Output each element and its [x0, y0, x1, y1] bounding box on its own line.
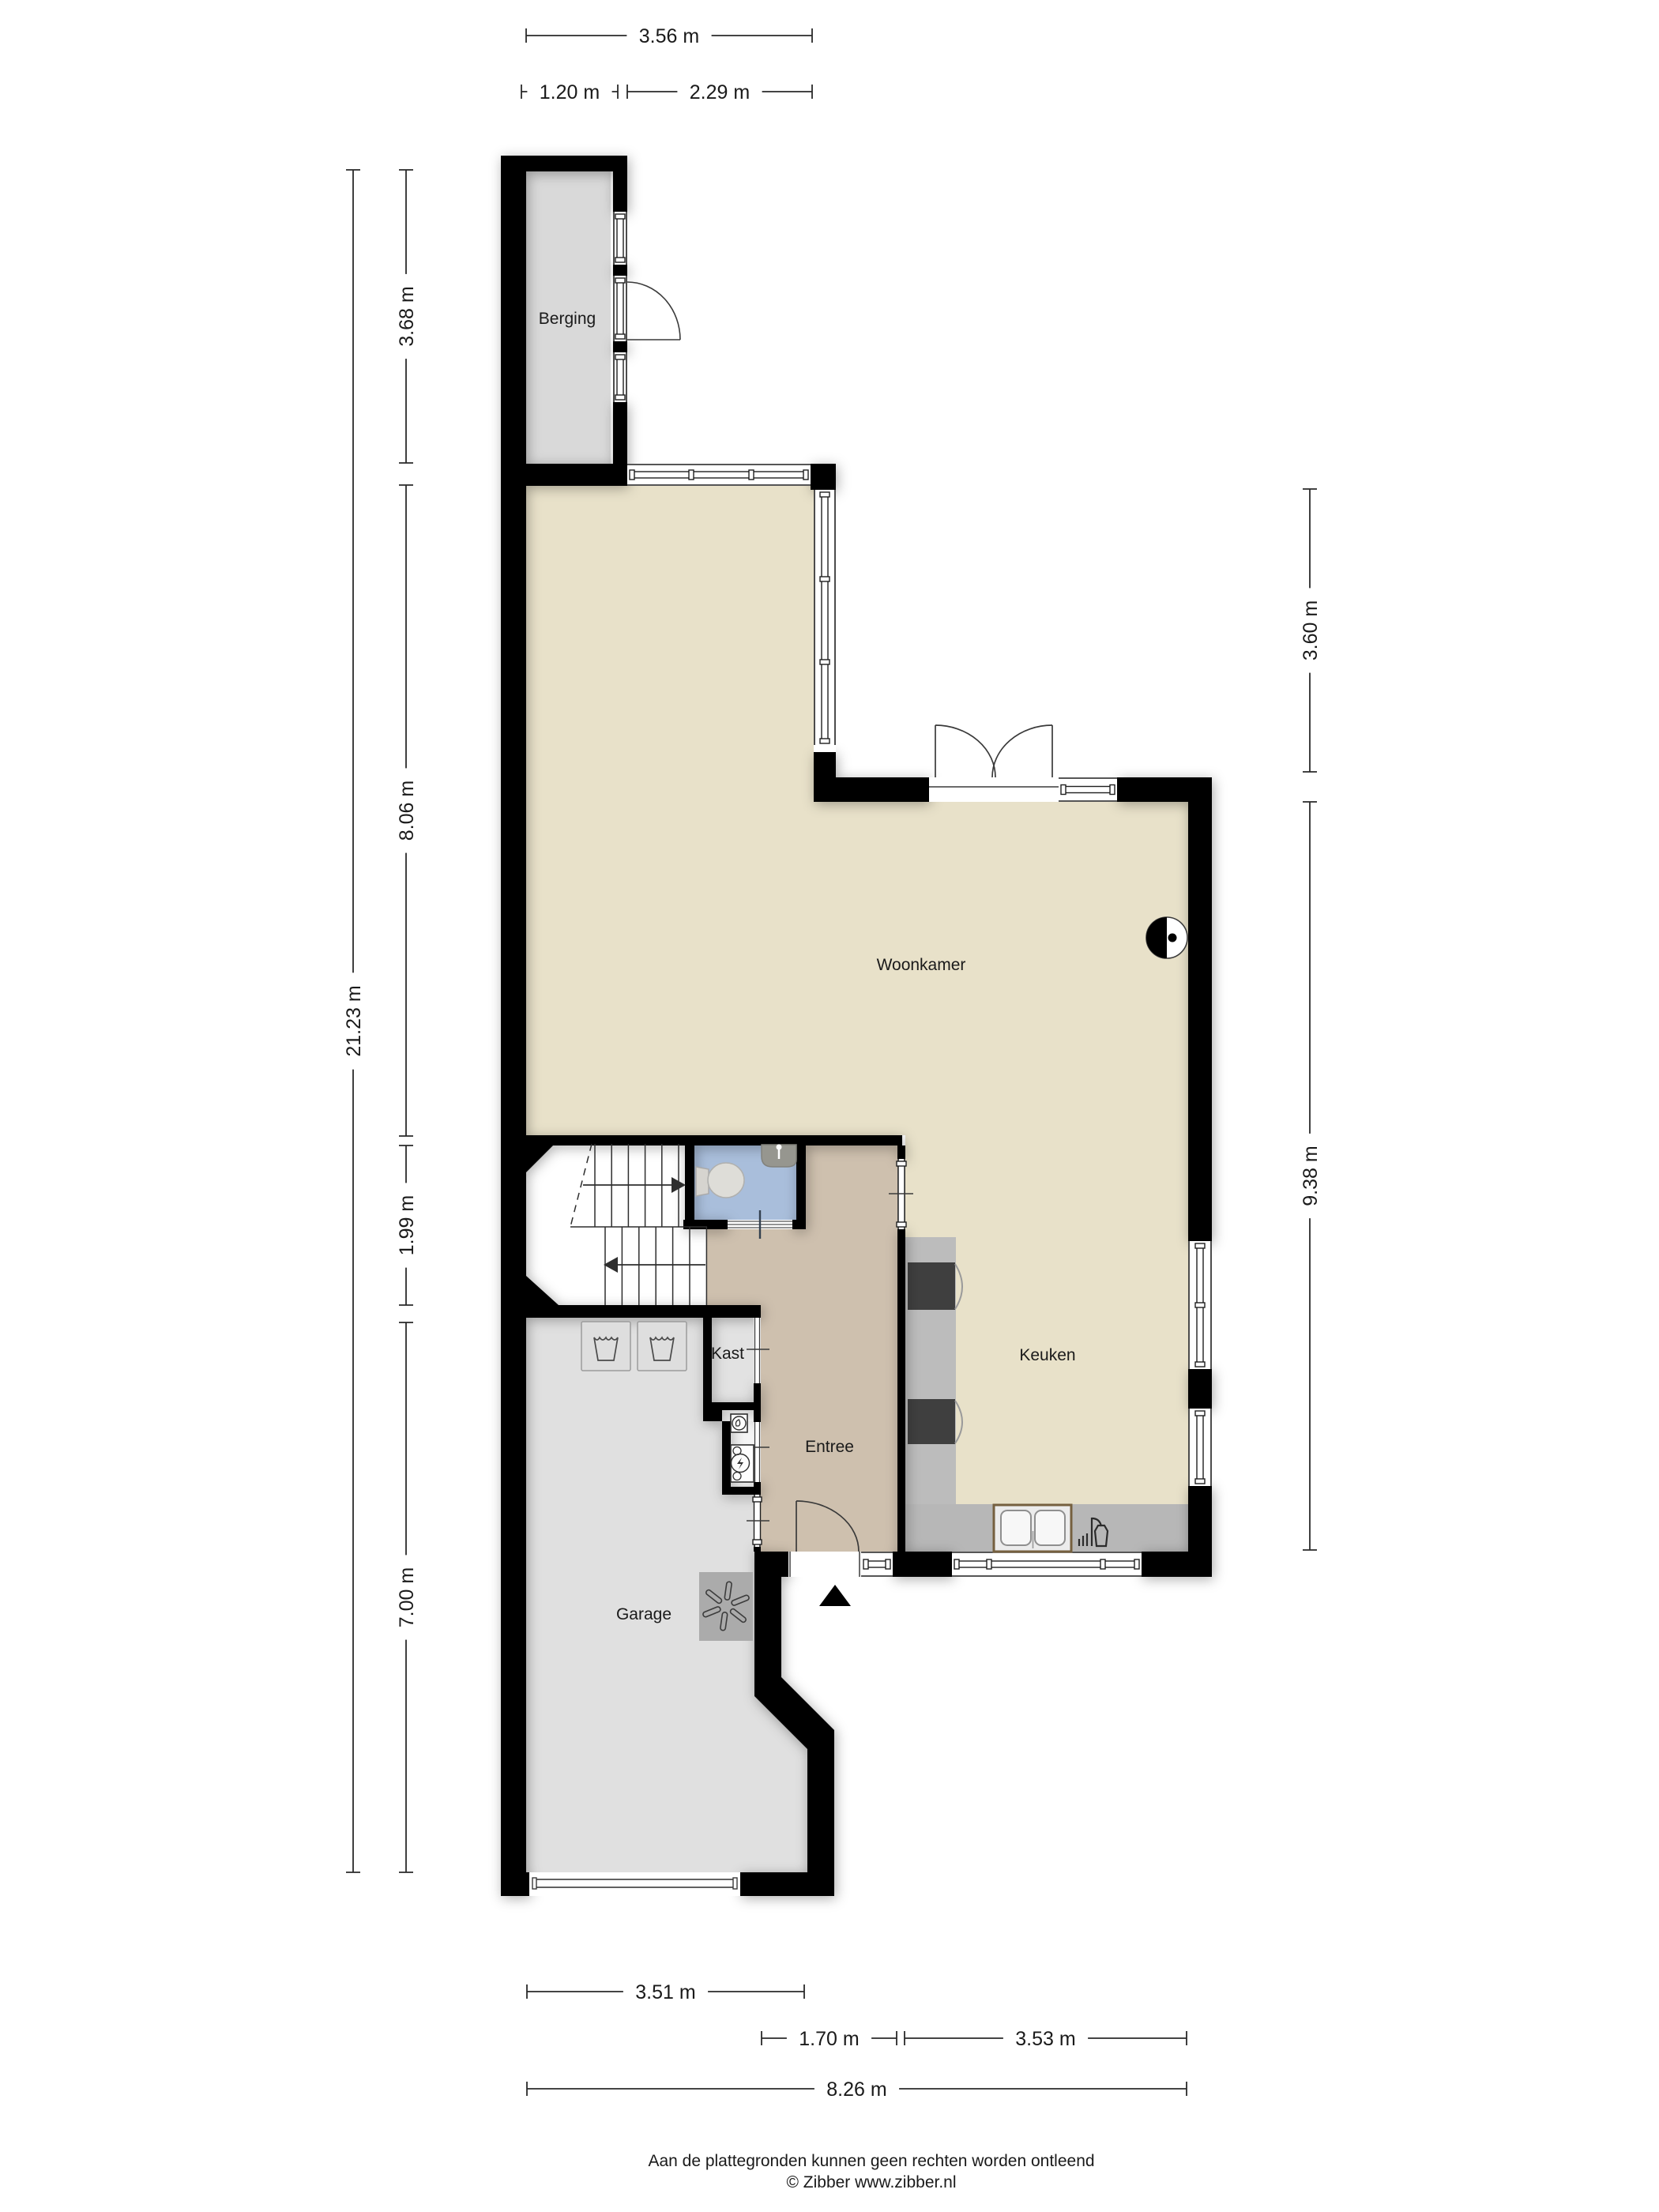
svg-text:8.26 m: 8.26 m: [826, 2078, 886, 2101]
svg-text:Woonkamer: Woonkamer: [877, 956, 966, 974]
svg-text:Aan de plattegronden kunnen ge: Aan de plattegronden kunnen geen rechten…: [648, 2152, 1094, 2170]
svg-text:Berging: Berging: [539, 310, 596, 328]
svg-text:3.56 m: 3.56 m: [639, 25, 699, 47]
svg-text:8.06 m: 8.06 m: [396, 781, 418, 841]
svg-text:3.51 m: 3.51 m: [635, 1981, 695, 2003]
svg-text:21.23 m: 21.23 m: [343, 985, 365, 1056]
svg-text:2.29 m: 2.29 m: [690, 81, 750, 103]
svg-text:3.68 m: 3.68 m: [396, 286, 418, 346]
svg-text:3.60 m: 3.60 m: [1300, 600, 1322, 660]
svg-text:Keuken: Keuken: [1019, 1346, 1075, 1364]
svg-text:Garage: Garage: [616, 1605, 671, 1623]
svg-text:© Zibber www.zibber.nl: © Zibber www.zibber.nl: [786, 2173, 956, 2191]
svg-text:7.00 m: 7.00 m: [396, 1567, 418, 1627]
svg-text:1.99 m: 1.99 m: [396, 1195, 418, 1255]
svg-text:1.70 m: 1.70 m: [799, 2028, 859, 2050]
svg-text:Entree: Entree: [805, 1438, 854, 1456]
svg-text:3.53 m: 3.53 m: [1015, 2028, 1075, 2050]
svg-text:Kast: Kast: [711, 1345, 744, 1363]
svg-text:1.20 m: 1.20 m: [540, 81, 600, 103]
svg-text:9.38 m: 9.38 m: [1300, 1145, 1322, 1206]
